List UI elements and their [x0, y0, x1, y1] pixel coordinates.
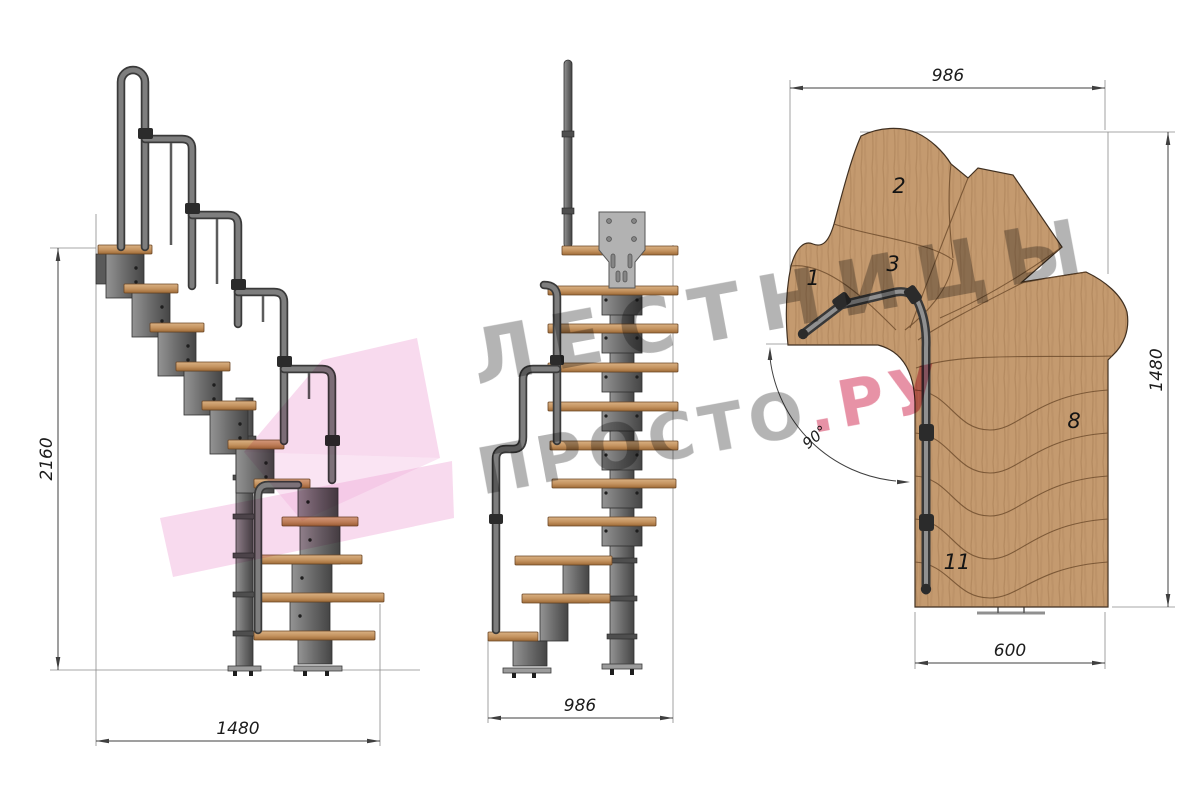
arrow-left-icon [96, 739, 109, 744]
plate-hole [607, 237, 612, 242]
arrow-down-icon [56, 657, 61, 670]
tread [254, 631, 375, 640]
plan-bottom-label: 600 [994, 641, 1026, 661]
tread [515, 556, 612, 565]
plate-slot [628, 254, 632, 268]
plate-hole [632, 219, 637, 224]
step-number: 8 [1067, 409, 1080, 433]
arrow-left-icon [790, 86, 803, 91]
drawing-canvas: 2160 1480 [0, 0, 1200, 790]
arrow-right-icon [367, 739, 380, 744]
arrow-right-icon [1092, 86, 1105, 91]
tread [150, 323, 204, 332]
plan-top-label: 986 [932, 66, 965, 86]
logo-shape [244, 338, 440, 458]
anchor-bolts [233, 671, 329, 676]
rod-collar [562, 131, 574, 137]
arrow-left-icon [488, 716, 501, 721]
step-number: 2 [892, 174, 905, 198]
base-flange [503, 668, 551, 673]
newel-rod [564, 60, 572, 248]
plan-wood [786, 128, 1127, 607]
base-flange [294, 666, 342, 671]
arrow-right-icon [897, 480, 910, 485]
side-width-label: 1480 [216, 719, 259, 739]
plan-dim-bottom: 600 [915, 641, 1105, 665]
arrow-up-icon [768, 347, 773, 360]
handrail-segment [145, 139, 192, 286]
plate-hole [607, 219, 612, 224]
tread [257, 555, 362, 564]
arrow-left-icon [915, 661, 928, 666]
plan-right-label: 1480 [1147, 348, 1167, 391]
step-number: 11 [944, 550, 971, 574]
plate-slot [616, 271, 620, 282]
handrail-segment [192, 215, 238, 324]
wood-grain [786, 128, 1127, 607]
rail-collar [489, 514, 503, 524]
plate-hole [632, 237, 637, 242]
tread [257, 593, 384, 602]
base-flange [228, 666, 261, 671]
mounting-plate [599, 212, 645, 288]
rod-collar [562, 208, 574, 214]
plan-dim-top: 986 [790, 66, 1105, 90]
rail-collar [919, 514, 934, 531]
plate-slot [623, 271, 627, 282]
rail-end-cap [921, 584, 931, 594]
arrow-up-icon [56, 248, 61, 261]
arrow-up-icon [1166, 132, 1171, 145]
handrail-loop [121, 70, 145, 247]
front-width-label: 986 [564, 696, 597, 716]
arrow-right-icon [1092, 661, 1105, 666]
arrow-down-icon [1166, 594, 1171, 607]
base-flange [602, 664, 642, 669]
plate-slot [611, 254, 615, 268]
tread [522, 594, 610, 603]
staircase-drawing: 2160 1480 [0, 0, 1200, 790]
handrail-segment [192, 215, 238, 324]
tread [202, 401, 256, 410]
lower-modules [513, 565, 589, 666]
side-height-label: 2160 [37, 437, 57, 480]
plan-dim-right: 1480 [1147, 132, 1170, 607]
handrail-segment [145, 139, 192, 286]
tread [176, 362, 230, 371]
tread [548, 517, 656, 526]
wall-bracket [977, 607, 1045, 613]
plan-view: 986 1480 600 [766, 66, 1175, 669]
arrow-right-icon [660, 716, 673, 721]
tread [124, 284, 178, 293]
